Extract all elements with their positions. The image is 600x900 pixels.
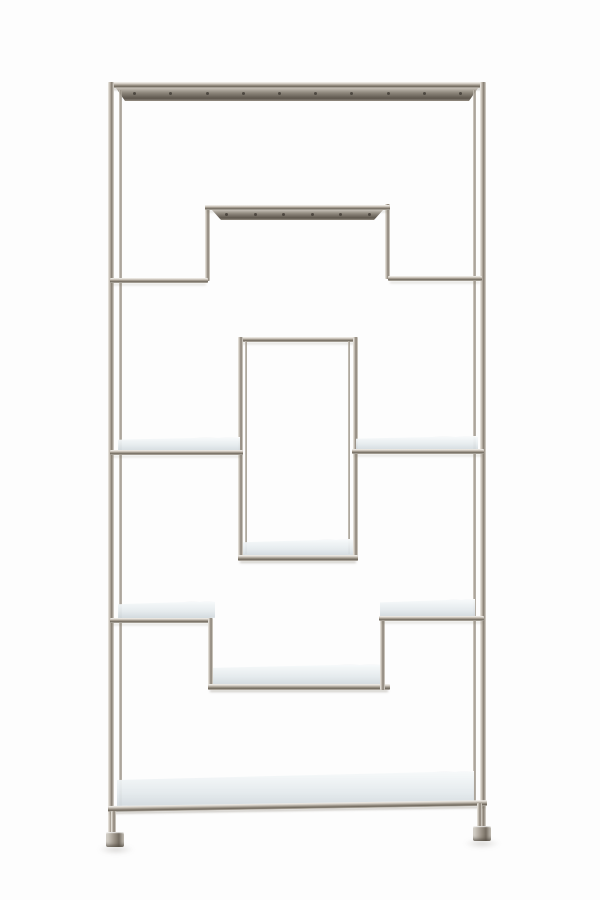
bridge-right-post [385,204,390,279]
tier3-right-shelf-bar [352,449,484,454]
tier4-right-drop-post [380,616,385,690]
rivet-dot [242,92,245,95]
tier2-right-shelf-bar [388,276,482,281]
frame-top-bar [108,82,486,88]
rivet-dot [169,92,172,95]
box-left-post-back [245,341,247,554]
box-right-post-back [348,341,350,554]
rivet-dot [254,213,257,216]
rivet-dot [133,92,136,95]
rivet-dot [423,92,426,95]
rivet-dot [339,213,342,216]
left-foot-shadow [98,845,134,854]
bridge-left-post [205,205,210,281]
tier4-right-shelf-bar [379,616,484,621]
rivet-dot [311,213,314,216]
tier4-left-drop-post [208,618,213,690]
bridge-top-bar [205,205,390,210]
rivet-dot [278,92,281,95]
box-bottom-bar [238,555,358,561]
box-top-bar [238,337,358,342]
etagere-product-photo [0,0,600,900]
rivet-dot [206,92,209,95]
frame-right-leg [480,82,486,830]
stage [0,0,600,900]
right-foot-shadow [464,839,500,848]
rivet-dot [387,92,390,95]
rivet-dot [282,213,285,216]
tier4-left-shelf-bar [110,618,213,623]
rivet-dot [350,92,353,95]
rivet-dot [368,213,371,216]
rivet-dot [225,213,228,216]
bridge-flange [212,210,383,220]
rivet-dot [314,92,317,95]
frame-left-leg [108,82,114,836]
rivet-dot [459,92,462,95]
tier2-left-shelf-bar [110,278,208,283]
frame-top-flange [116,88,478,101]
tier4-center-shelf-bar [208,684,390,690]
tier3-left-shelf-bar [110,450,243,455]
